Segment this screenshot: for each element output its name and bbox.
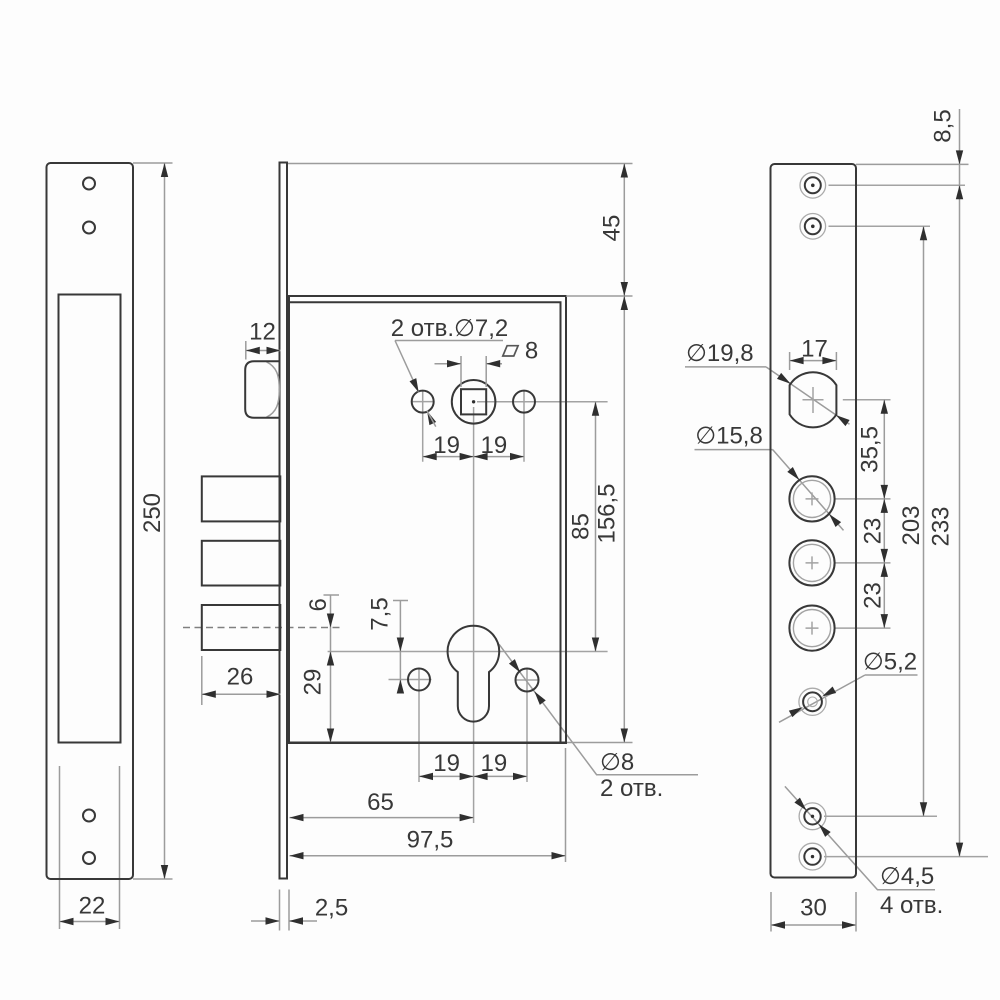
svg-text:65: 65 [367,789,394,816]
svg-text:45: 45 [599,215,626,242]
svg-text:19: 19 [481,750,508,777]
svg-text:19: 19 [481,432,508,459]
svg-text:8: 8 [525,338,538,365]
svg-text:97,5: 97,5 [407,827,454,854]
svg-text:85: 85 [568,513,595,540]
svg-text:23: 23 [860,582,887,609]
svg-text:203: 203 [898,505,925,545]
svg-text:2 отв.∅7,2: 2 отв.∅7,2 [391,315,509,342]
svg-text:17: 17 [801,336,828,363]
svg-text:7,5: 7,5 [367,597,394,630]
svg-text:12: 12 [249,319,276,346]
svg-text:250: 250 [139,493,166,533]
svg-text:2,5: 2,5 [315,895,348,922]
svg-text:30: 30 [800,895,827,922]
svg-text:4 отв.: 4 отв. [880,892,943,919]
svg-text:19: 19 [433,750,460,777]
svg-text:23: 23 [860,518,887,545]
svg-text:29: 29 [300,669,327,696]
svg-text:2 отв.: 2 отв. [600,775,663,802]
svg-text:22: 22 [79,893,106,920]
svg-text:6: 6 [305,598,332,611]
svg-text:233: 233 [928,506,955,546]
svg-text:∅8: ∅8 [600,749,634,776]
svg-text:8,5: 8,5 [930,109,957,142]
svg-text:35,5: 35,5 [857,426,884,473]
svg-text:∅5,2: ∅5,2 [863,649,917,676]
svg-text:∅4,5: ∅4,5 [880,863,934,890]
svg-text:156,5: 156,5 [594,483,621,543]
svg-text:26: 26 [227,664,254,691]
svg-text:∅15,8: ∅15,8 [695,423,763,450]
svg-text:19: 19 [433,432,460,459]
svg-text:∅19,8: ∅19,8 [686,340,754,367]
